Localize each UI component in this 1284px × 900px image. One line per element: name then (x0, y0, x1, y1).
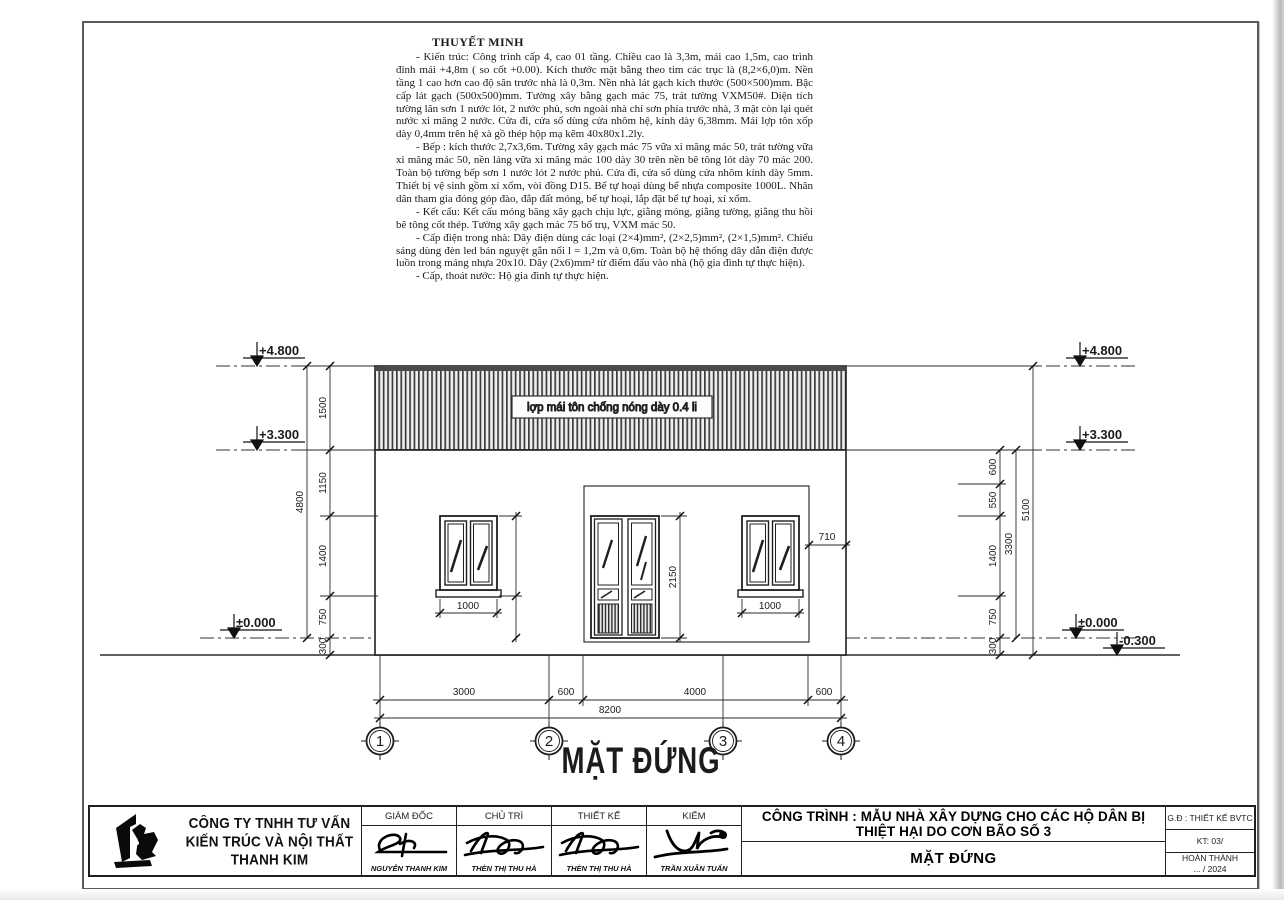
signature-lead (461, 827, 547, 863)
svg-text:1400: 1400 (988, 544, 999, 567)
elevation-marker-left-3300: +3.300 (243, 426, 305, 450)
signature-checker (651, 827, 737, 863)
sheet-info-stage: G.Đ : THIẾT KẾ BVTC (1166, 807, 1254, 830)
elevation-marker-left-4800: +4.800 (243, 342, 305, 366)
svg-text:2150: 2150 (668, 565, 679, 588)
svg-text:8200: 8200 (599, 705, 622, 716)
elevation-marker-right-zero: ±0.000 (1062, 614, 1124, 638)
window-left (436, 516, 501, 597)
elevation-drawing: lợp mái tôn chống nóng dày 0.4 li (0, 0, 1284, 900)
photo-edge-right (1272, 0, 1284, 900)
project-title: CÔNG TRÌNH : MẪU NHÀ XÂY DỰNG CHO CÁC HỘ… (742, 807, 1165, 842)
svg-text:4: 4 (837, 733, 845, 750)
svg-text:1: 1 (376, 733, 384, 750)
sheet-info-cell: G.Đ : THIẾT KẾ BVTC KT: 03/ HOÀN THÀNH .… (1166, 807, 1254, 875)
svg-text:3000: 3000 (453, 687, 476, 698)
company-logo (106, 810, 178, 872)
svg-text:4000: 4000 (684, 687, 707, 698)
company-line2: KIẾN TRÚC VÀ NỘI THẤT THANH KIM (178, 832, 361, 869)
role-label: GIÁM ĐỐC (362, 807, 456, 826)
signer-name: NGUYỄN THANH KIM (362, 864, 456, 875)
signature-designer (556, 827, 642, 863)
title-block-company-cell: CÔNG TY TNHH TƯ VẤN KIẾN TRÚC VÀ NỘI THẤ… (90, 807, 362, 875)
signer-name: THÈN THỊ THU HÀ (552, 864, 646, 875)
svg-text:+3.300: +3.300 (259, 427, 299, 442)
svg-text:300: 300 (988, 637, 999, 654)
grid-bubble-4: 4 (822, 722, 860, 760)
sheet-info-date-line1: HOÀN THÀNH (1182, 853, 1238, 864)
svg-text:±0.000: ±0.000 (236, 615, 276, 630)
role-label: CHỦ TRÌ (457, 807, 551, 826)
svg-text:550: 550 (988, 491, 999, 508)
window-right (738, 516, 803, 597)
svg-text:3300: 3300 (1004, 532, 1015, 555)
svg-text:2: 2 (545, 733, 553, 750)
signature-cell-lead: CHỦ TRÌ THÈN THỊ THU HÀ (457, 807, 552, 875)
photo-edge-bottom (0, 889, 1284, 900)
signer-name: THÈN THỊ THU HÀ (457, 864, 551, 875)
sheet-title: MẶT ĐỨNG (742, 842, 1165, 875)
svg-text:300: 300 (318, 637, 329, 654)
project-cell: CÔNG TRÌNH : MẪU NHÀ XÂY DỰNG CHO CÁC HỘ… (742, 807, 1166, 875)
signature-cell-checker: KIỂM TRẦN XUÂN TUẤN (647, 807, 742, 875)
elevation-marker-right-4800: +4.800 (1066, 342, 1128, 366)
elevation-marker-right-minus300: -0.300 (1103, 632, 1165, 655)
svg-text:-0.300: -0.300 (1119, 633, 1156, 648)
svg-text:1500: 1500 (318, 396, 329, 419)
signature-cell-director: GIÁM ĐỐC NGUYỄN THANH KIM (362, 807, 457, 875)
svg-text:1000: 1000 (759, 601, 782, 612)
svg-text:600: 600 (988, 458, 999, 475)
svg-text:+4.800: +4.800 (1082, 343, 1122, 358)
svg-text:600: 600 (558, 687, 575, 698)
drawing-title: MẶT ĐỨNG (561, 739, 720, 781)
entrance-door (591, 516, 659, 638)
role-label: THIẾT KẾ (552, 807, 646, 826)
svg-text:1000: 1000 (457, 601, 480, 612)
svg-text:1400: 1400 (318, 544, 329, 567)
svg-text:750: 750 (988, 608, 999, 625)
svg-text:5100: 5100 (1021, 498, 1032, 521)
svg-text:1150: 1150 (318, 472, 329, 494)
sheet-info-date: HOÀN THÀNH ... / 2024 (1166, 853, 1254, 875)
svg-text:+4.800: +4.800 (259, 343, 299, 358)
roof-label: lợp mái tôn chống nóng dày 0.4 li (527, 402, 697, 414)
sheet-info-number: KT: 03/ (1166, 830, 1254, 853)
svg-text:600: 600 (816, 687, 833, 698)
elevation-marker-left-zero: ±0.000 (220, 614, 282, 638)
company-name: CÔNG TY TNHH TƯ VẤN KIẾN TRÚC VÀ NỘI THẤ… (178, 813, 361, 868)
svg-text:+3.300: +3.300 (1082, 427, 1122, 442)
company-line1: CÔNG TY TNHH TƯ VẤN (178, 813, 361, 831)
svg-text:±0.000: ±0.000 (1078, 615, 1118, 630)
signature-cell-designer: THIẾT KẾ THÈN THỊ THU HÀ (552, 807, 647, 875)
grid-bubble-1: 1 (361, 722, 399, 760)
svg-text:750: 750 (318, 608, 329, 625)
role-label: KIỂM (647, 807, 741, 826)
svg-text:710: 710 (819, 532, 836, 543)
signer-name: TRẦN XUÂN TUẤN (647, 864, 741, 875)
sheet-info-date-line2: ... / 2024 (1193, 864, 1226, 875)
signature-director (366, 828, 452, 862)
elevation-marker-right-3300: +3.300 (1066, 426, 1128, 450)
svg-text:4800: 4800 (295, 490, 306, 513)
scanned-drawing-sheet: { "notes": { "title": "THUYẾT MINH", "p1… (0, 0, 1284, 900)
title-block: CÔNG TY TNHH TƯ VẤN KIẾN TRÚC VÀ NỘI THẤ… (88, 805, 1256, 877)
